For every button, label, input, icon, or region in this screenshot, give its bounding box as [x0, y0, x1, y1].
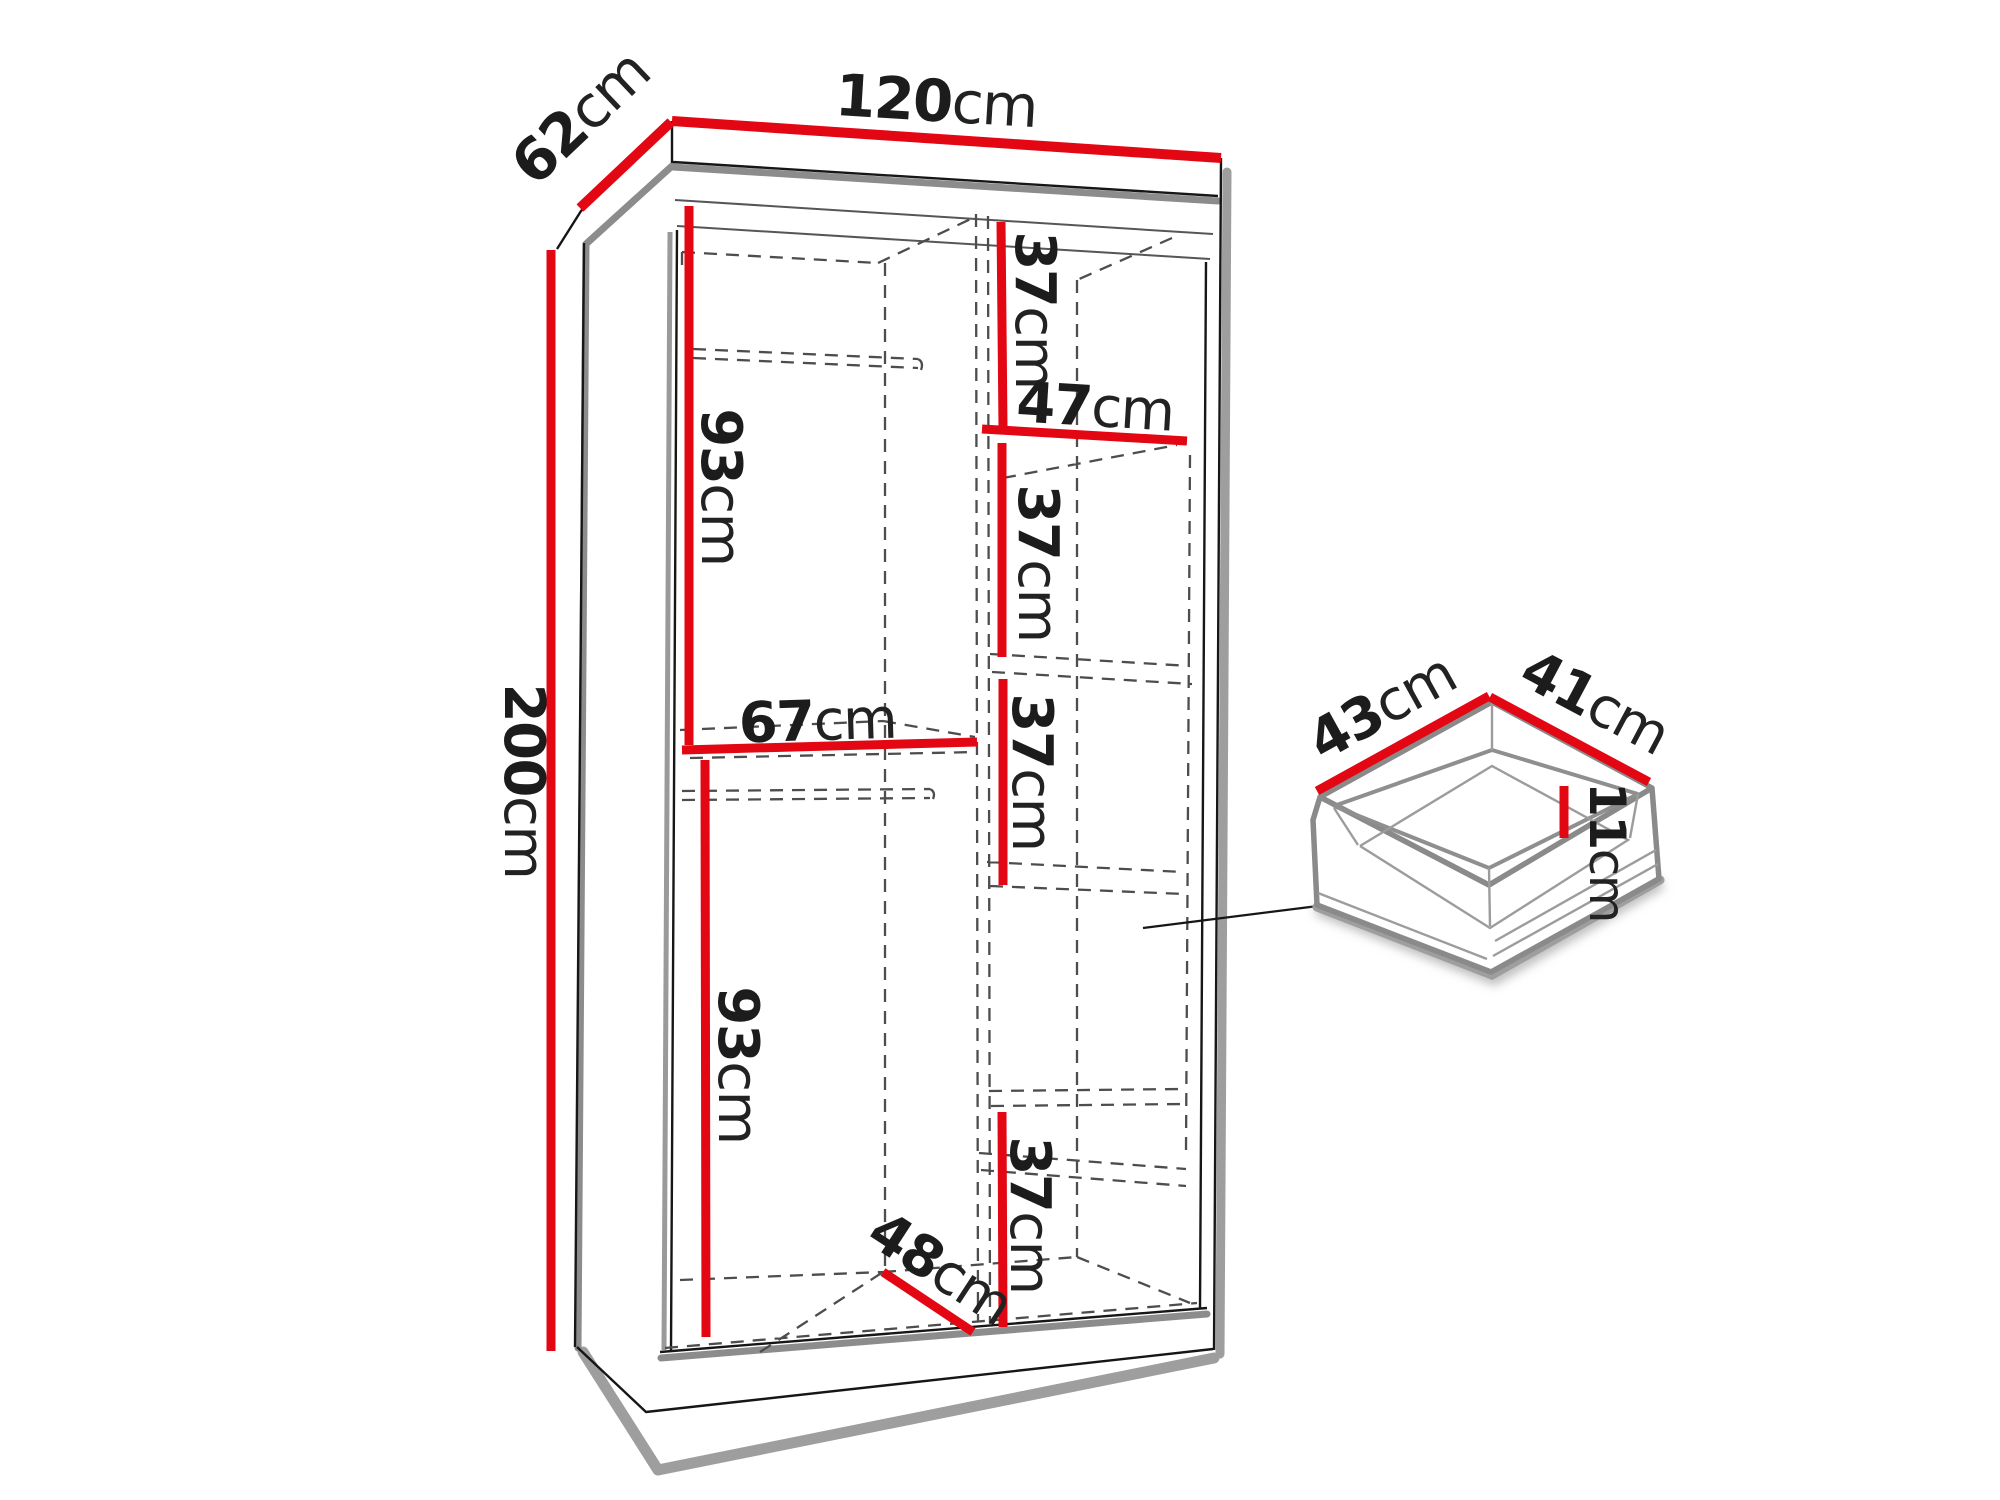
dim-label-lower-hanging: 93cm	[705, 986, 770, 1143]
dim-label-height: 200cm	[491, 684, 556, 879]
drawer-drawing: 43cm 41cm 11cm	[1297, 637, 1679, 978]
dim-label-right-third: 37cm	[999, 693, 1064, 850]
dim-label-upper-hanging: 93cm	[688, 408, 753, 565]
diagram-canvas: 120cm 62cm 200cm 93cm 67cm 93cm 48cm 37c…	[0, 0, 2000, 1500]
dim-label-right-bottom: 37cm	[997, 1136, 1062, 1293]
dim-label-right-second: 37cm	[1005, 484, 1070, 641]
wardrobe-drawing: 120cm 62cm 200cm 93cm 67cm 93cm 48cm 37c…	[491, 37, 1227, 1470]
dim-label-left-section-width: 67cm	[738, 687, 897, 757]
furniture-dimension-diagram: 120cm 62cm 200cm 93cm 67cm 93cm 48cm 37c…	[0, 0, 2000, 1500]
dim-label-shelf-width: 47cm	[1015, 370, 1176, 444]
dim-label-width: 120cm	[833, 61, 1039, 141]
dim-label-right-top: 37cm	[1002, 231, 1067, 388]
dim-label-drawer-height: 11cm	[1578, 782, 1636, 922]
